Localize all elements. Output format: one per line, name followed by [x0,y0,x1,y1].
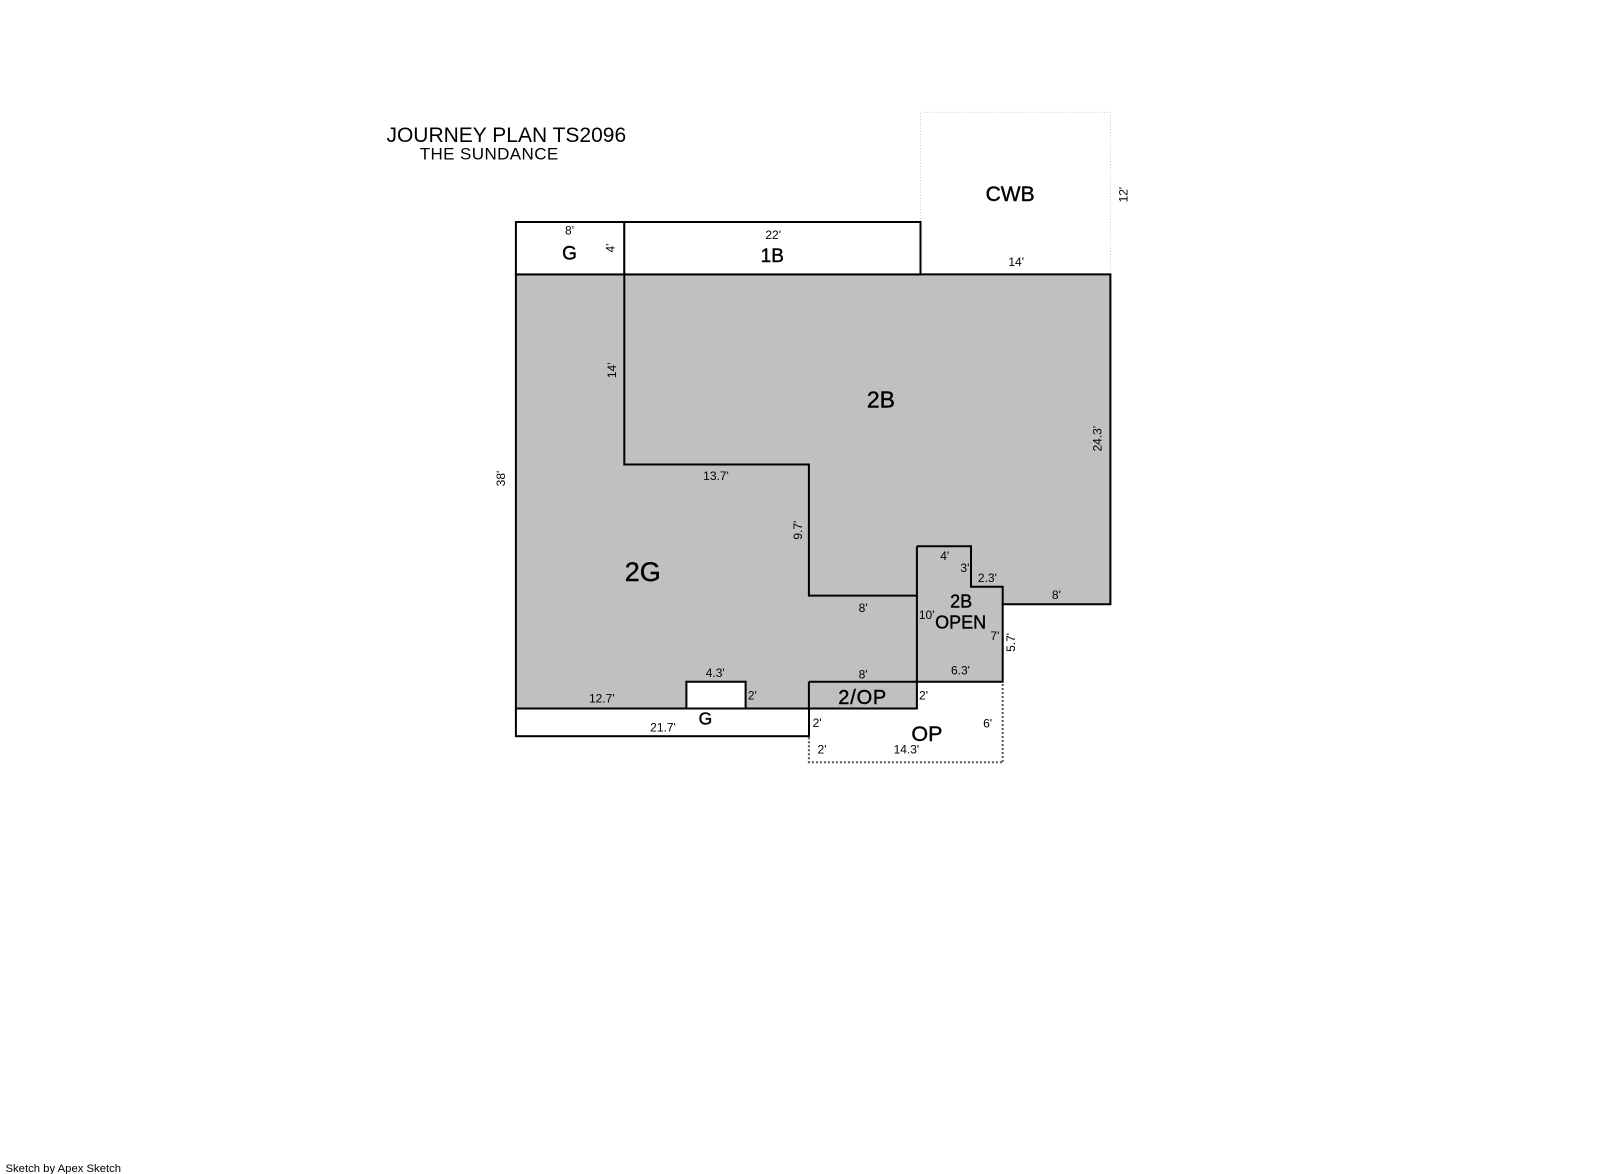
svg-text:CWB: CWB [986,183,1035,206]
svg-text:38': 38' [494,471,508,487]
svg-text:13.7': 13.7' [703,469,729,483]
svg-text:14': 14' [1008,255,1024,269]
svg-text:2/OP: 2/OP [838,687,887,709]
svg-text:10': 10' [919,608,935,622]
svg-text:14.3': 14.3' [894,743,920,757]
svg-text:G: G [699,709,713,729]
svg-text:2G: 2G [625,557,661,587]
svg-text:Sketch by Apex Sketch: Sketch by Apex Sketch [6,1163,122,1174]
svg-text:2': 2' [813,716,822,730]
svg-text:1B: 1B [761,246,784,267]
svg-text:2.3': 2.3' [978,571,997,585]
svg-text:2': 2' [748,688,757,702]
svg-text:2': 2' [919,689,928,703]
svg-text:4.3': 4.3' [706,666,725,680]
svg-text:5.7': 5.7' [1004,633,1018,652]
svg-text:4': 4' [940,549,949,563]
svg-text:OPEN: OPEN [935,613,986,633]
svg-text:8': 8' [859,667,868,681]
svg-text:2': 2' [818,743,827,757]
svg-text:9.7': 9.7' [791,521,805,540]
svg-text:12': 12' [1116,187,1130,203]
svg-text:14': 14' [605,362,619,378]
svg-text:8': 8' [1052,588,1061,602]
svg-text:6.3': 6.3' [951,664,970,678]
svg-text:24.3': 24.3' [1091,426,1105,452]
svg-text:2B: 2B [950,591,972,611]
svg-text:22': 22' [765,228,781,242]
svg-text:6': 6' [983,716,992,730]
svg-text:7': 7' [990,629,999,643]
svg-text:4': 4' [604,244,618,253]
svg-text:8': 8' [859,601,868,615]
svg-text:3': 3' [960,561,969,575]
svg-text:G: G [562,244,577,265]
svg-text:2B: 2B [867,386,895,412]
svg-text:12.7': 12.7' [589,692,615,706]
svg-text:21.7': 21.7' [650,721,676,735]
svg-text:THE SUNDANCE: THE SUNDANCE [420,145,559,164]
svg-text:8': 8' [565,223,574,237]
